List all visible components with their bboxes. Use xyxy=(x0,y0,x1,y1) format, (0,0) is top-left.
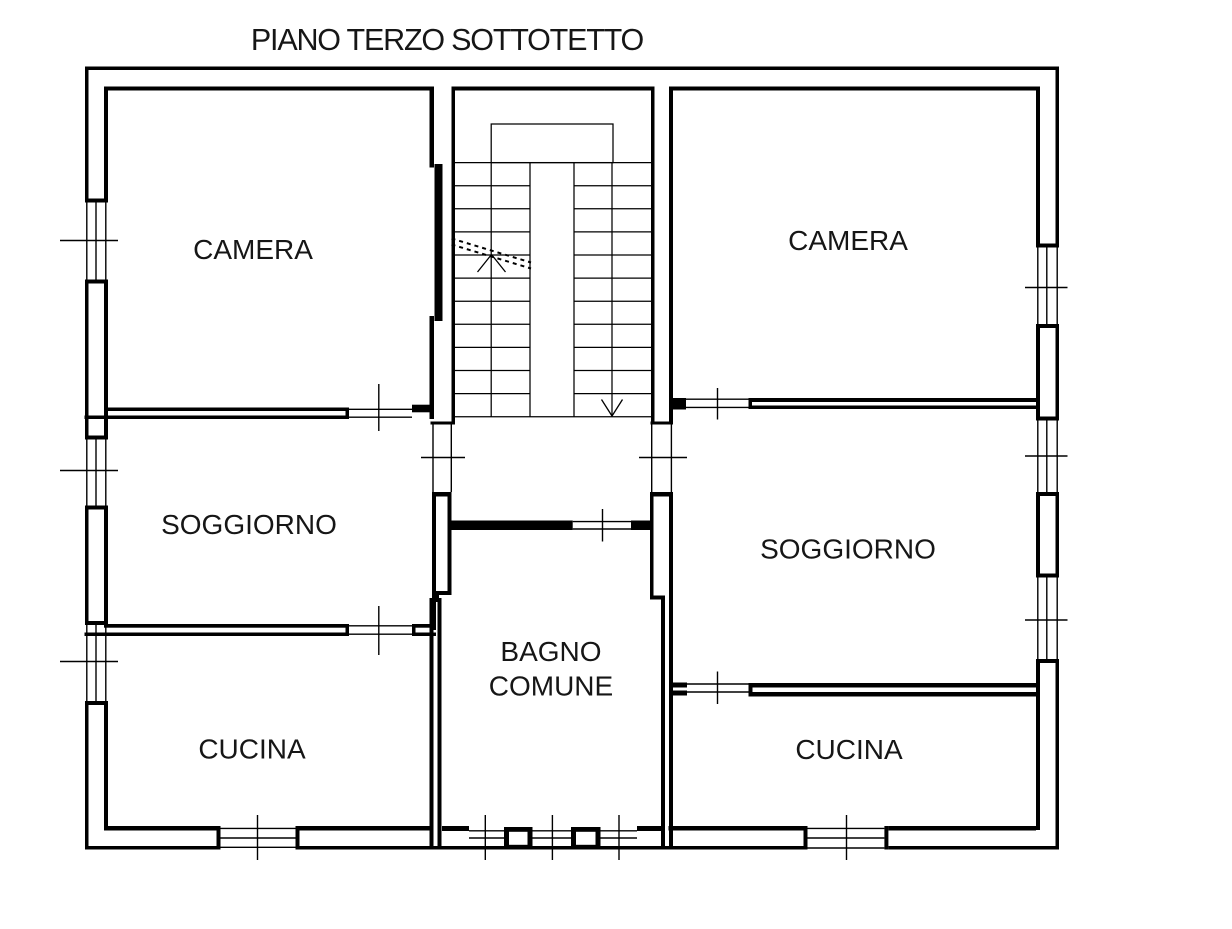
svg-text:SOGGIORNO: SOGGIORNO xyxy=(161,509,337,540)
svg-text:CUCINA: CUCINA xyxy=(198,734,306,765)
svg-text:BAGNO: BAGNO xyxy=(500,636,601,667)
svg-text:COMUNE: COMUNE xyxy=(489,671,613,702)
svg-text:CUCINA: CUCINA xyxy=(795,734,903,765)
svg-text:CAMERA: CAMERA xyxy=(193,234,313,265)
svg-text:SOGGIORNO: SOGGIORNO xyxy=(760,534,936,565)
svg-text:CAMERA: CAMERA xyxy=(788,225,908,256)
svg-text:PIANO TERZO SOTTOTETTO: PIANO TERZO SOTTOTETTO xyxy=(251,23,644,57)
